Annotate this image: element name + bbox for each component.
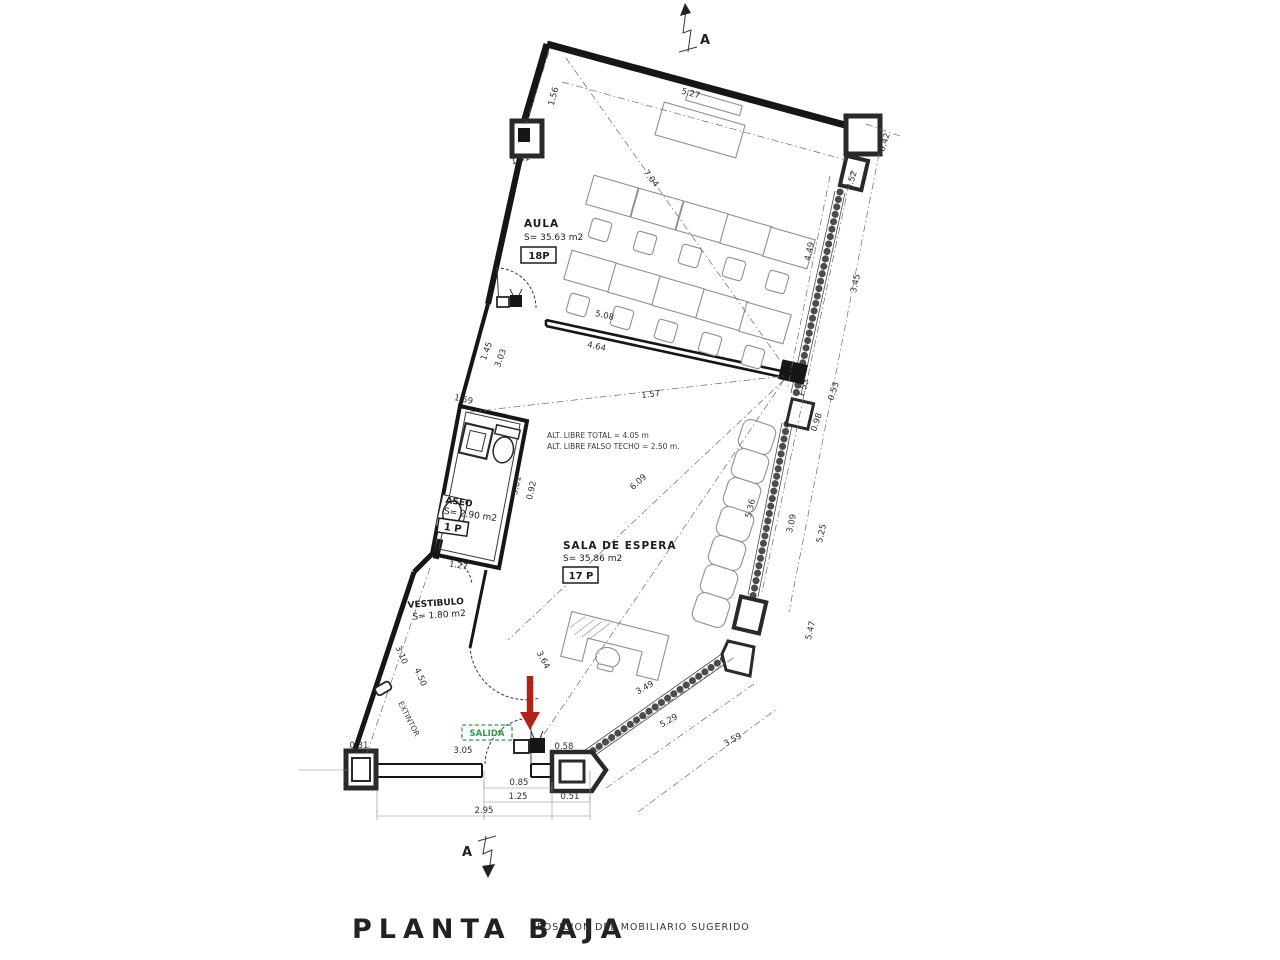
dim-label: 0.31 (350, 741, 369, 751)
dim-label: 1.27 (448, 559, 468, 572)
height-note: ALT. LIBRE TOTAL = 4.05 m ALT. LIBRE FAL… (547, 431, 680, 451)
floor-plan-page: 5.27 1.56 1.41 7.04 0.42 3.52 4.49 3.45 … (0, 0, 1280, 960)
section-letter-bottom: A (462, 845, 472, 860)
dim-label: 5.47 (804, 620, 818, 641)
dim-label: 5.27 (680, 87, 701, 102)
dim-label: 3.10 (393, 645, 410, 666)
extinguisher: EXTINTOR (374, 681, 421, 738)
room-area: S= 35.63 m2 (524, 233, 583, 243)
columns (346, 116, 880, 791)
dim-label: 3.45 (849, 273, 863, 294)
cabinet-icon (459, 423, 493, 459)
dim-label: 4.64 (586, 340, 607, 354)
exit-sign: SALIDA (462, 725, 512, 740)
room-name: AULA (524, 218, 559, 230)
tv-icon-classroom (497, 289, 522, 307)
dim-label: 1.25 (509, 792, 528, 802)
dim-label: 0.51 (561, 792, 580, 802)
dim-label: 5.08 (594, 309, 615, 323)
dim-label: 1.59 (453, 393, 474, 407)
extinguisher-label: EXTINTOR (396, 700, 421, 738)
dim-label: 1.56 (547, 86, 562, 107)
section-marker-top: A (679, 3, 710, 52)
sala-room-label: SALA DE ESPERA S= 35.86 m2 17 P (563, 540, 677, 583)
room-area: S= 1.80 m2 (412, 609, 466, 623)
room-capacity: 18P (528, 251, 549, 262)
floor-plan-svg: 5.27 1.56 1.41 7.04 0.42 3.52 4.49 3.45 … (0, 0, 1280, 960)
dim-label: 1.45 (479, 341, 495, 362)
dim-label: 3.09 (785, 513, 799, 534)
dim-label: 0.58 (555, 742, 574, 752)
section-letter-top: A (700, 33, 710, 48)
dim-label: 0.85 (510, 778, 529, 788)
direction-arrow-icon (520, 676, 540, 730)
dim-label: 0.92 (525, 480, 539, 501)
dim-label: 4.50 (412, 667, 429, 688)
height-note-line1: ALT. LIBRE TOTAL = 4.05 m (547, 431, 649, 440)
dim-label: 5.01 (510, 475, 524, 496)
sala-chairs (690, 417, 778, 629)
dim-label: 3.59 (722, 731, 743, 749)
dim-label: 5.25 (815, 523, 829, 544)
section-marker-bottom: A (462, 836, 496, 878)
title-block: PLANTA BAJA POSICION DEL MOBILIARIO SUGE… (352, 914, 750, 945)
room-capacity: 17 P (569, 571, 594, 582)
dim-label: 3.64 (534, 649, 552, 670)
height-note-line2: ALT. LIBRE FALSO TECHO = 2.50 m. (547, 442, 680, 451)
dim-label: 6.09 (628, 472, 649, 492)
dim-label: 0.53 (826, 381, 841, 402)
aula-furniture (564, 90, 815, 369)
room-area: S= 35.86 m2 (563, 554, 622, 564)
dim-label: 2.95 (475, 806, 494, 816)
dim-label: 1.57 (641, 389, 661, 401)
dim-label: 3.05 (454, 746, 473, 756)
tv-icon-entrance (514, 731, 545, 753)
dim-label: 5.29 (658, 712, 679, 730)
dim-label: 3.03 (493, 348, 509, 369)
reception-desk (560, 612, 669, 684)
room-name: SALA DE ESPERA (563, 540, 677, 552)
exit-label: SALIDA (470, 729, 505, 739)
dim-label: 3.49 (634, 679, 655, 697)
vestibulo-room-label: VESTIBULO S= 1.80 m2 (407, 597, 466, 623)
dim-label: 7.04 (641, 168, 661, 189)
page-subtitle: POSICION DEL MOBILIARIO SUGERIDO (537, 922, 750, 933)
